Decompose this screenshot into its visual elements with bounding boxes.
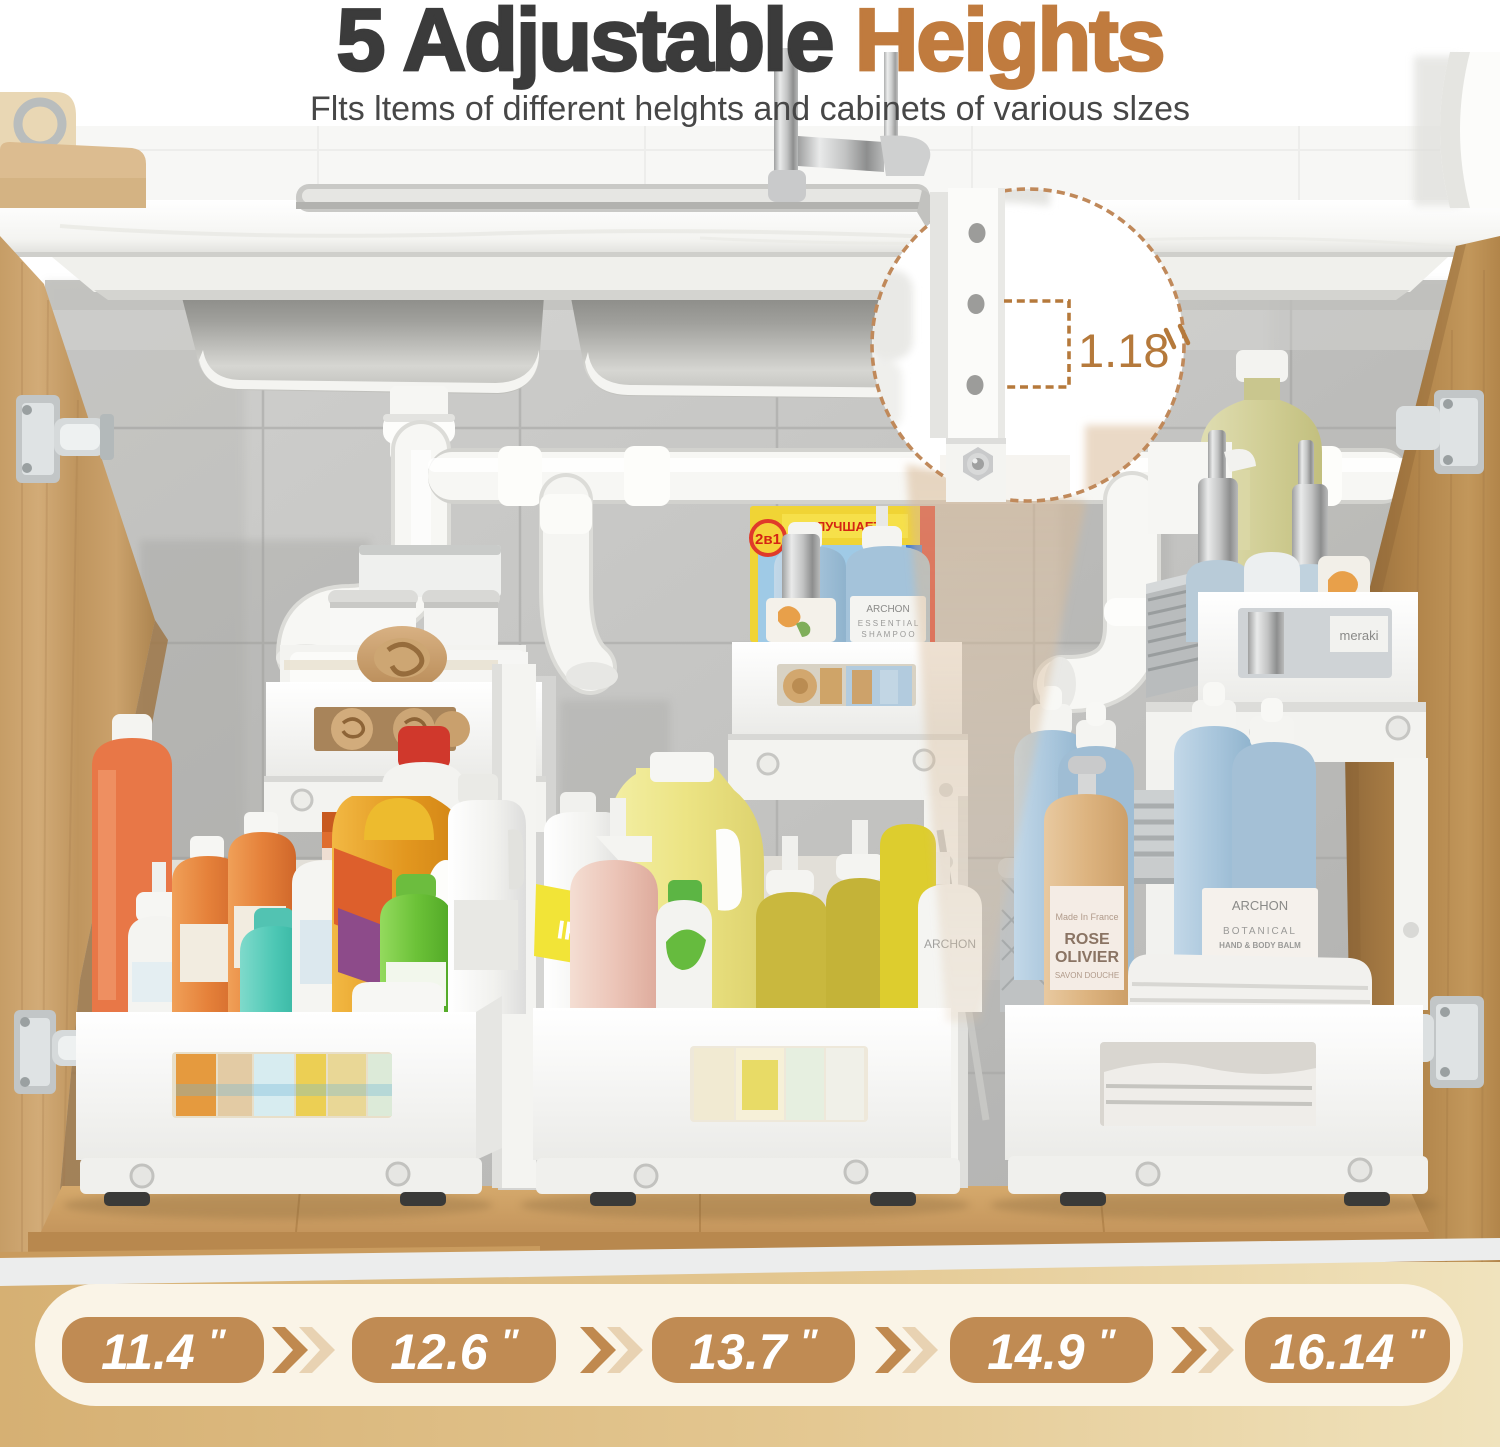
svg-text:ARCHON: ARCHON xyxy=(866,604,909,615)
svg-text:Flts ltems of different helght: Flts ltems of different helghts and cabi… xyxy=(310,90,1190,128)
svg-text:ROSE: ROSE xyxy=(1064,931,1110,948)
svg-text:E S S E N T I A L: E S S E N T I A L xyxy=(858,619,919,628)
svg-text:5 Adjustable Heights: 5 Adjustable Heights xyxy=(336,0,1163,89)
svg-text:OLIVIER: OLIVIER xyxy=(1055,949,1119,966)
svg-text:BOTANICAL: BOTANICAL xyxy=(1223,926,1297,937)
svg-text:11.4 ″: 11.4 ″ xyxy=(101,1323,227,1380)
svg-text:2в1: 2в1 xyxy=(755,531,781,548)
svg-text:ARCHON: ARCHON xyxy=(1232,898,1288,913)
svg-text:16.14 ″: 16.14 ″ xyxy=(1269,1323,1426,1380)
svg-text:SAVON DOUCHE: SAVON DOUCHE xyxy=(1055,971,1119,980)
svg-text:14.9 ″: 14.9 ″ xyxy=(987,1323,1116,1380)
svg-text:HAND & BODY BALM: HAND & BODY BALM xyxy=(1219,941,1301,950)
svg-text:meraki: meraki xyxy=(1339,628,1378,643)
svg-text:13.7 ″: 13.7 ″ xyxy=(689,1323,818,1380)
svg-text:Made In France: Made In France xyxy=(1055,912,1118,922)
svg-text:1.18: 1.18 xyxy=(1078,324,1169,377)
svg-text:S H A M P O O: S H A M P O O xyxy=(861,630,914,639)
svg-text:12.6 ″: 12.6 ″ xyxy=(390,1323,519,1380)
